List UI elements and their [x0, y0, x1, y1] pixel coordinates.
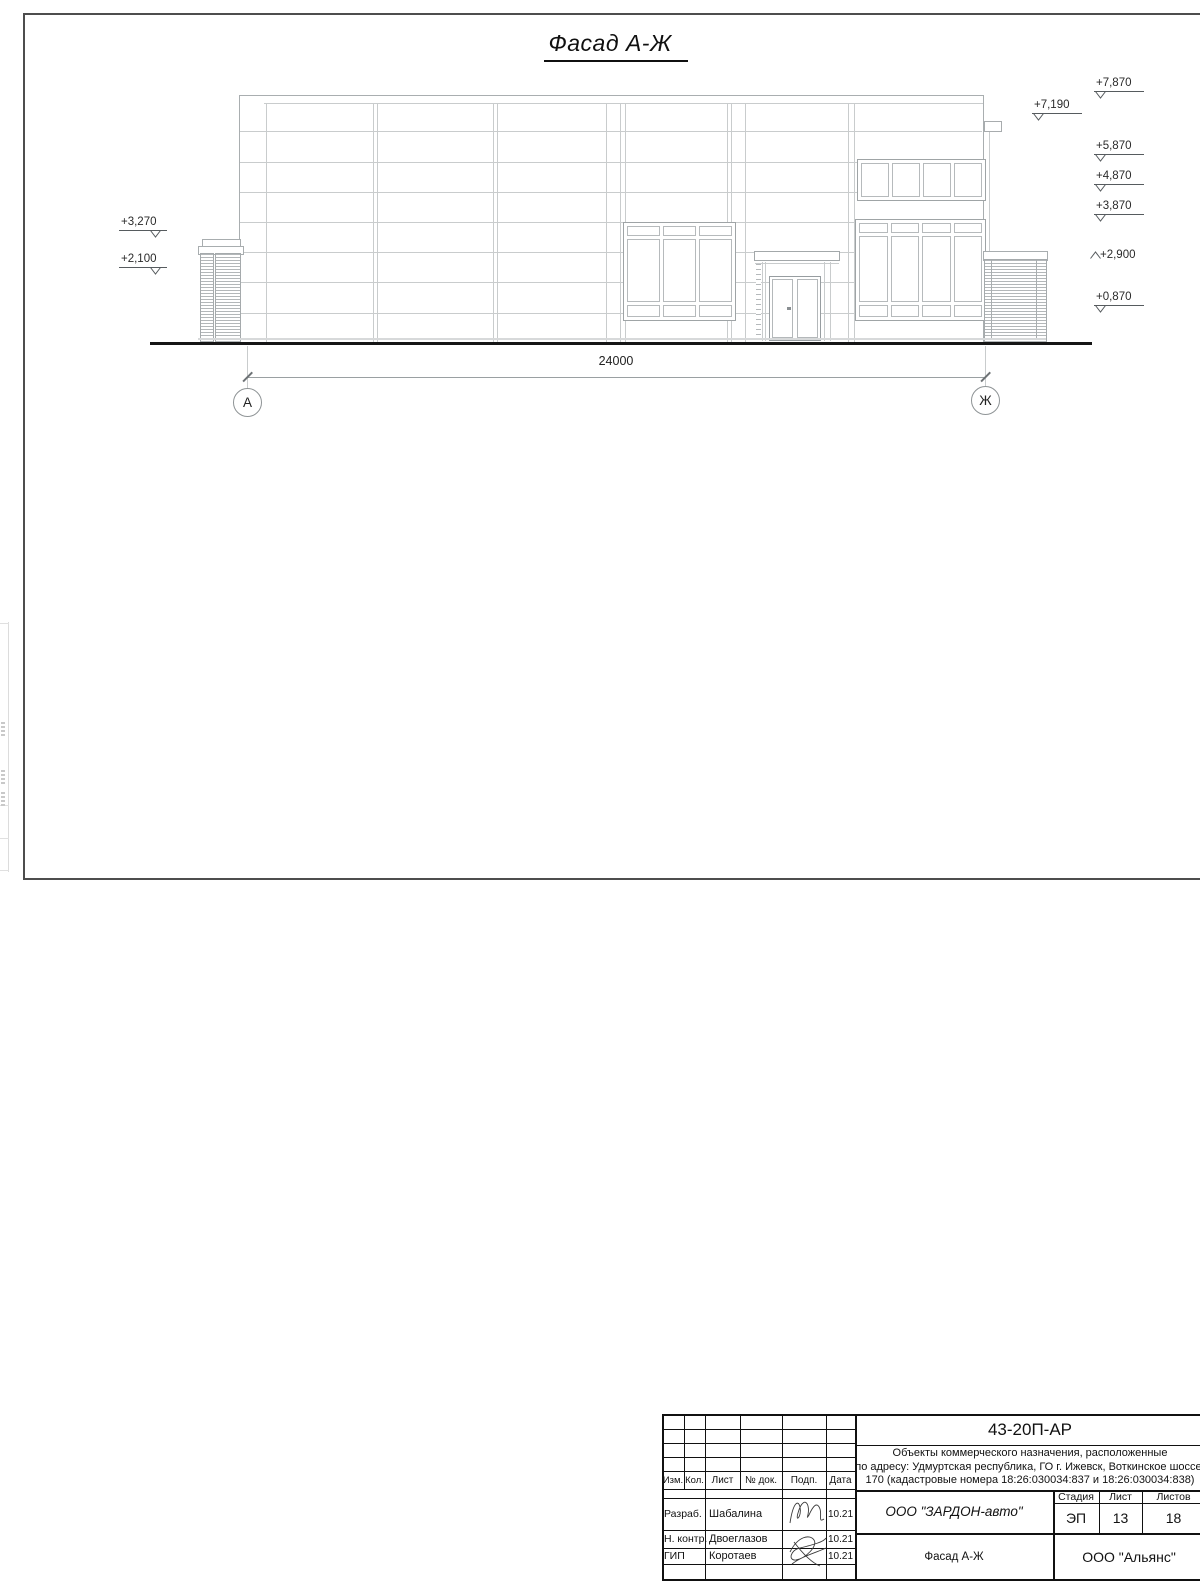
title-block: Изм. Кол. Лист № док. Подп. Дата Разраб.…: [0, 700, 1200, 900]
facade-drawing: 24000 А Ж +7,870 +7,190 +5,870 +4,870 +3…: [0, 0, 1200, 500]
window-pane: [922, 236, 951, 302]
tb-name: Коротаев: [709, 1548, 782, 1564]
panel-joint-vertical: [620, 104, 621, 342]
tb-sheets-value: 18: [1142, 1503, 1200, 1533]
portal-right-inner-line: [824, 262, 825, 341]
axis-bubble-zh: Ж: [971, 386, 1000, 415]
tb-role: ГИП: [664, 1548, 709, 1564]
elevation-arrow-icon: [1095, 154, 1106, 162]
window-pane: [627, 305, 660, 317]
elevation-arrow-icon: [1095, 184, 1106, 192]
elevation-mark: +5,870: [1094, 140, 1144, 155]
tb-date: 10.21: [826, 1530, 855, 1548]
tb-description-line: по адресу: Удмуртская республика, ГО г. …: [855, 1461, 1200, 1475]
dimension-value: 24000: [556, 354, 676, 368]
clerestory-window-band: [857, 159, 986, 201]
margin-line: [0, 623, 9, 624]
tb-sheet-name: Фасад А-Ж: [855, 1533, 1053, 1581]
elevation-mark: +3,870: [1094, 200, 1144, 215]
signature-scribble: [786, 1493, 828, 1533]
elevation-arrow-icon: [1090, 251, 1101, 259]
window-pane: [699, 305, 732, 317]
elevation-mark: +0,870: [1094, 291, 1144, 306]
window-pane: [954, 305, 983, 317]
tb-header-kol: Кол.: [684, 1471, 705, 1489]
tb-line: [782, 1414, 783, 1581]
window-pane: [859, 236, 888, 302]
entrance-pier-ticks: [756, 264, 761, 341]
extension-line-left: [247, 346, 248, 390]
tb-header-izm: Изм.: [662, 1471, 684, 1489]
elevation-arrow-icon: [150, 230, 161, 238]
entrance-canopy: [754, 251, 840, 261]
door-leaf: [797, 279, 818, 338]
window-pane: [923, 163, 951, 197]
tb-name: Двоеглазов: [709, 1530, 782, 1548]
tb-header-podp: Подп.: [782, 1471, 826, 1489]
portal-right-line: [830, 262, 831, 341]
window-group-right: [855, 219, 986, 321]
window-pane: [954, 223, 983, 233]
elevation-mark: +2,100: [119, 253, 167, 268]
axis-bubble-a: А: [233, 388, 262, 417]
window-pane: [699, 239, 732, 302]
panel-joint-vertical: [745, 104, 746, 342]
window-pane: [954, 163, 982, 197]
base-line: [198, 338, 1046, 340]
tb-name: Шабалина: [709, 1498, 782, 1530]
panel-joint-vertical: [377, 104, 378, 342]
elevation-mark: +2,900: [1100, 249, 1136, 261]
panel-joint-vertical: [493, 104, 494, 342]
tb-role: Разраб.: [664, 1498, 705, 1530]
window-pane: [627, 226, 660, 236]
tb-stage-header: Стадия: [1053, 1490, 1099, 1503]
parapet-second-line: [264, 103, 983, 104]
window-pane: [861, 163, 889, 197]
window-pane: [859, 223, 888, 233]
window-pane: [922, 305, 951, 317]
tb-date: 10.21: [826, 1548, 855, 1564]
panel-joint-vertical: [373, 104, 374, 342]
elevation-arrow-icon: [1033, 113, 1044, 121]
window-pane: [954, 236, 983, 302]
right-louver-mullion: [991, 260, 992, 340]
window-group-left: [623, 222, 736, 321]
window-pane: [891, 305, 920, 317]
portal-left-inner-line: [765, 262, 766, 341]
tb-organization: ООО "Альянс": [1053, 1533, 1200, 1581]
right-louver-panel: [984, 259, 1047, 343]
window-pane: [627, 239, 660, 302]
elevation-mark: +7,190: [1032, 99, 1082, 114]
tb-sheet-value: 13: [1099, 1503, 1142, 1533]
elevation-mark: +3,270: [119, 216, 167, 231]
left-louver-narrow: [200, 253, 214, 343]
tb-line: [855, 1445, 1200, 1446]
window-pane: [891, 223, 920, 233]
roof-outlet-box: [984, 121, 1002, 132]
axis-letter: Ж: [979, 393, 991, 408]
panel-joint-vertical: [848, 104, 849, 342]
tb-listov-header: Листов: [1142, 1490, 1200, 1503]
extension-line-right: [985, 346, 986, 388]
window-pane: [699, 226, 732, 236]
door-handle: [787, 307, 791, 310]
ground-line: [150, 342, 1092, 345]
tb-stage-value: ЭП: [1053, 1503, 1099, 1533]
signature-scribble: [784, 1528, 830, 1570]
window-pane: [859, 305, 888, 317]
window-pane: [922, 223, 951, 233]
panel-joint-vertical: [266, 104, 267, 342]
tb-project-description: Объекты коммерческого назначения, распол…: [855, 1447, 1200, 1490]
tb-date: 10.21: [826, 1498, 855, 1530]
elevation-arrow-icon: [1095, 214, 1106, 222]
panel-joint-horizontal: [240, 131, 982, 132]
tb-doc-number: 43-20П-АР: [855, 1415, 1200, 1445]
tb-company: ООО "ЗАРДОН-авто": [855, 1490, 1053, 1533]
window-pane: [892, 163, 920, 197]
tb-description-line: Объекты коммерческого назначения, распол…: [855, 1447, 1200, 1461]
tb-role: Н. контр.: [664, 1530, 709, 1548]
tb-list-header: Лист: [1099, 1490, 1142, 1503]
panel-joint-vertical: [497, 104, 498, 342]
elevation-mark: +4,870: [1094, 170, 1144, 185]
parapet-top-line: [239, 95, 983, 96]
facade-panel-grid: [0, 0, 1200, 500]
left-louver-wide: [215, 253, 241, 343]
entrance-double-door: [769, 276, 821, 341]
portal-left-line: [762, 262, 763, 341]
elevation-arrow-icon: [150, 267, 161, 275]
elevation-mark: +7,870: [1094, 77, 1144, 92]
axis-letter: А: [243, 395, 252, 410]
tb-description-line: 170 (кадастровые номера 18:26:030034:837…: [855, 1474, 1200, 1488]
tb-header-list: Лист: [705, 1471, 740, 1489]
window-pane: [891, 236, 920, 302]
right-louver-mullion: [1036, 260, 1037, 340]
window-pane: [663, 239, 696, 302]
panel-joint-vertical: [606, 104, 607, 342]
elevation-arrow-icon: [1095, 305, 1106, 313]
tb-header-ndok: № док.: [740, 1471, 782, 1489]
canopy-underline: [755, 263, 839, 264]
dimension-line: [247, 377, 985, 378]
window-pane: [663, 305, 696, 317]
drawing-sheet: { "page": { "title": "Фасад А-Ж" }, "dra…: [0, 0, 1200, 900]
window-pane: [663, 226, 696, 236]
elevation-arrow-icon: [1095, 91, 1106, 99]
tb-header-data: Дата: [826, 1471, 855, 1489]
